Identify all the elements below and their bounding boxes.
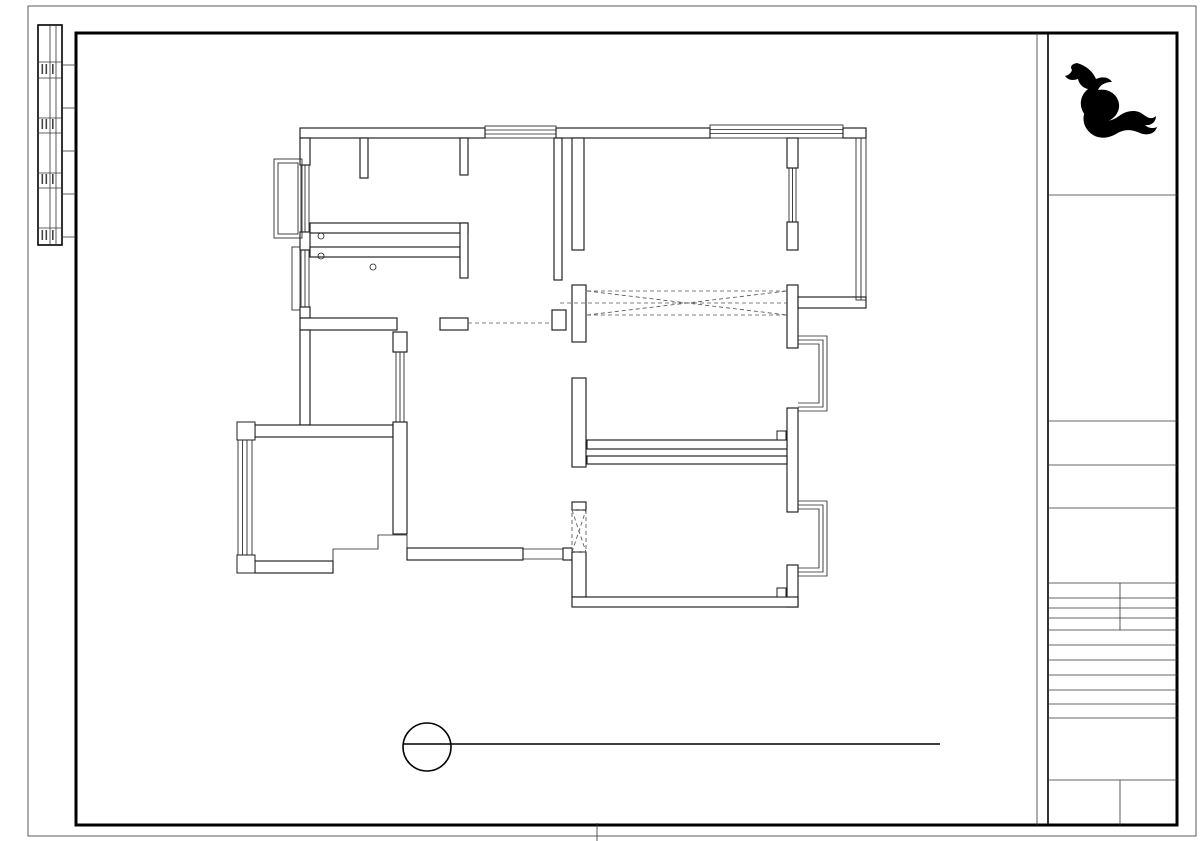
drawing-title-bar [403,723,940,771]
title-block [1037,33,1177,825]
left-signature-strip [38,25,76,245]
shaft-duct [572,510,586,552]
bay-window-upper [798,336,827,411]
sheet-code-circle [403,723,451,771]
strip-text-marks [42,64,54,240]
drawing-sheet [0,0,1200,841]
brand-logo [1065,63,1157,138]
windows [238,125,866,576]
title-block-lines [1048,195,1177,825]
floor-plan [237,125,866,607]
bay-window-lower [798,501,827,576]
entry-threshold [523,549,563,559]
walls [237,128,866,607]
steps [333,535,407,561]
sunken-area-hatch [468,291,787,323]
